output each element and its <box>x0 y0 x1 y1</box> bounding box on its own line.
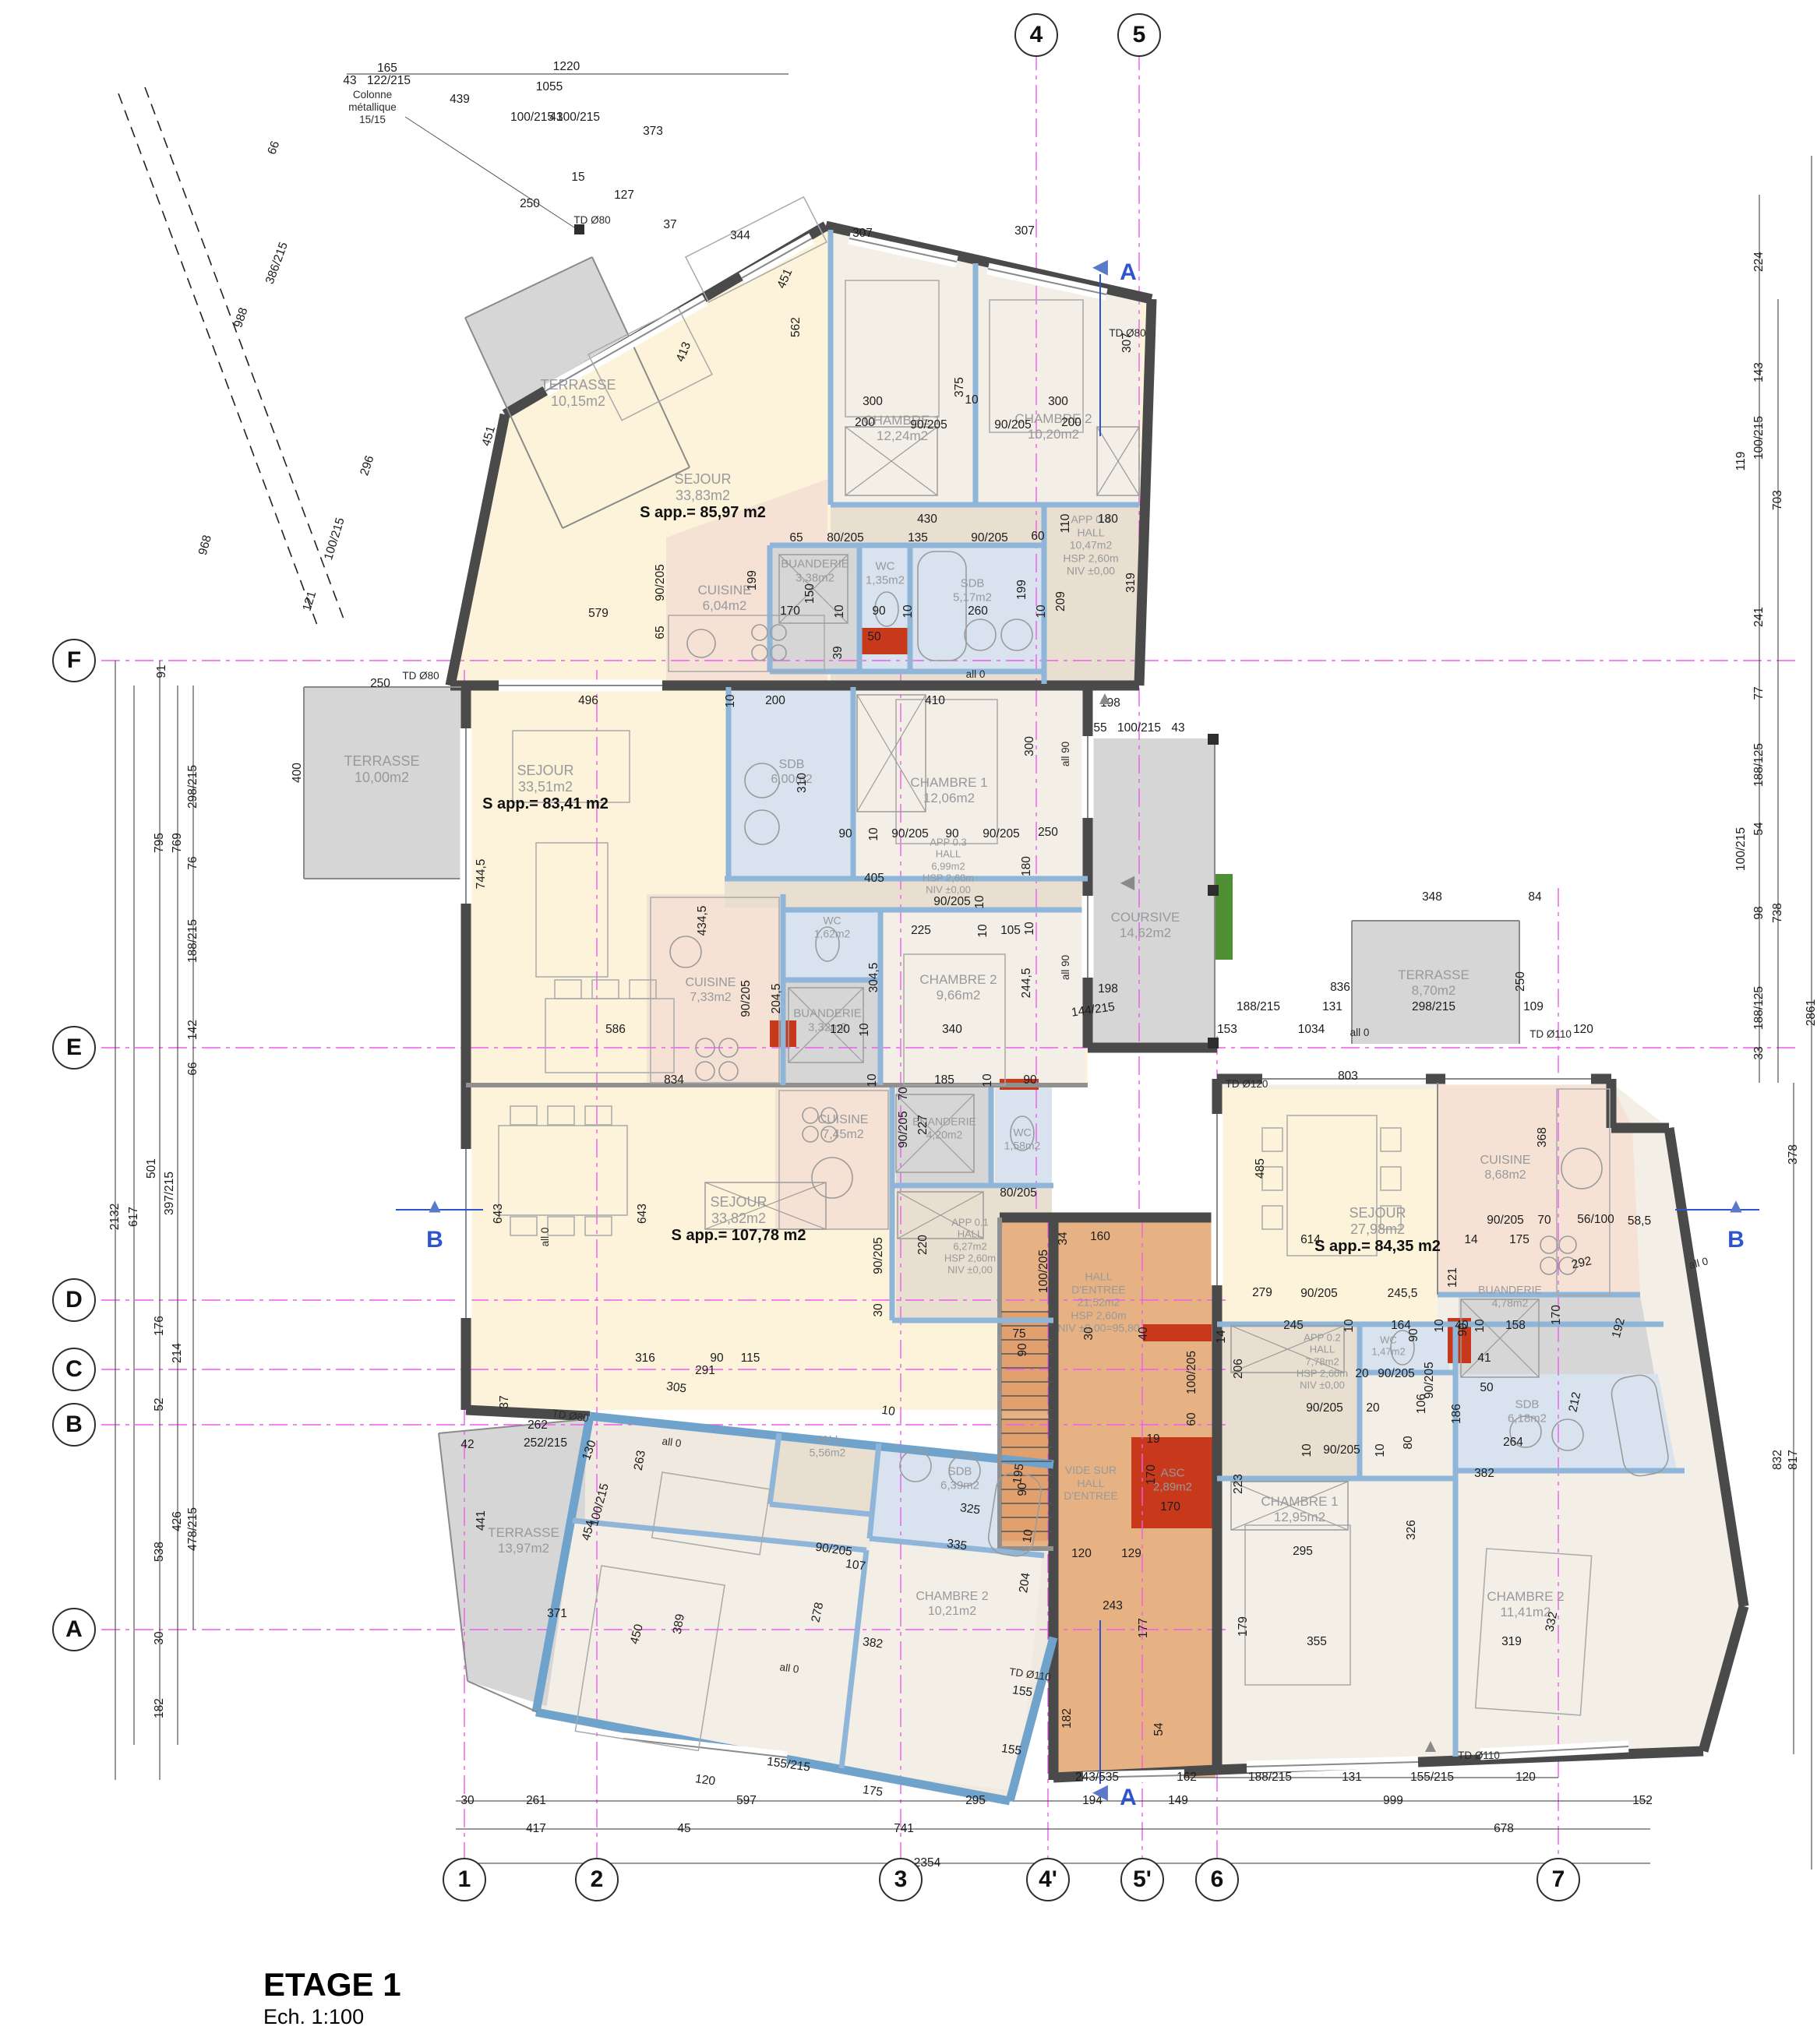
dimension-label: 149 <box>1168 1794 1188 1808</box>
dimension-label: 155/215 <box>1410 1771 1454 1785</box>
dimension-label: 155 <box>1000 1742 1022 1759</box>
dimension-label: 175 <box>862 1783 884 1800</box>
dimension-label: 54 <box>1752 822 1766 835</box>
dimension-label: 10 <box>724 694 738 707</box>
dimension-label: 305 <box>665 1380 687 1397</box>
dimension-label: 243 <box>1103 1599 1123 1613</box>
room-label-cuisine-app03: CUISINE7,33m2 <box>686 976 736 1006</box>
room-label-sdb-wing: SDB6,39m2 <box>940 1464 979 1492</box>
dimension-label: 441 <box>475 1510 489 1531</box>
room-label-chambre1-app03: CHAMBRE 112,06m2 <box>910 775 987 806</box>
dimension-label: 260 <box>968 604 988 618</box>
dimension-label: 307 <box>852 227 873 241</box>
dimension-label: 90/205 <box>654 564 668 601</box>
dimension-label: 142 <box>186 1020 200 1040</box>
dimension-label: 430 <box>917 513 937 527</box>
dimension-label: 115 <box>741 1352 760 1366</box>
dimension-label: 10 <box>1023 922 1037 935</box>
dimension-label: 10 <box>1374 1443 1388 1457</box>
dimension-label: 143 <box>1752 362 1766 382</box>
dimension-label: 496 <box>578 694 598 708</box>
dimension-label: 60 <box>1185 1412 1199 1426</box>
dimension-label: 319 <box>1501 1635 1522 1649</box>
annotation-label: TD Ø80 <box>1109 327 1145 340</box>
room-label-cuisine-app02: CUISINE8,68m2 <box>1480 1154 1531 1183</box>
dimension-label: 252/215 <box>524 1436 567 1450</box>
title-block: ETAGE 1 Ech. 1:100 <box>263 1966 401 2029</box>
dimension-label: 100/215 <box>1752 416 1766 460</box>
room-label-vide-hall: VIDE SURHALLD'ENTREE <box>1064 1464 1118 1503</box>
room-label-sdb-app02: SDB6,18m2 <box>1508 1397 1547 1425</box>
room-label-terrasse-app01: TERRASSE13,97m2 <box>488 1525 559 1556</box>
annotation-label: TD Ø110 <box>1458 1750 1500 1762</box>
dimension-label: 100/215 <box>510 111 554 125</box>
annotation-label: TD Ø120 <box>1226 1078 1268 1091</box>
annotation-label: all 0 <box>662 1435 683 1450</box>
dimension-label: 245 <box>1283 1319 1304 1333</box>
dimension-label: 10 <box>866 1073 880 1087</box>
dimension-label: 382 <box>862 1635 884 1652</box>
annotation-label: all 90 <box>1060 742 1072 766</box>
dimension-label: 84 <box>1528 890 1541 904</box>
dimension-label: 155 <box>1011 1683 1033 1700</box>
dimension-label: 70 <box>1537 1214 1551 1228</box>
dimension-label: 417 <box>526 1822 546 1836</box>
dimension-label: 295 <box>965 1794 986 1808</box>
dimension-label: 209 <box>1054 591 1068 611</box>
dimension-label: 100/215 <box>1734 827 1748 871</box>
dimension-label: 60 <box>1031 530 1044 544</box>
dimension-label: 54 <box>1152 1722 1166 1736</box>
dimension-label: 340 <box>942 1023 962 1037</box>
room-label-hall-app02: APP 0.2HALL7,78m2HSP 2,60mNIV ±0,00 <box>1297 1332 1348 1392</box>
dimension-label: 90/205 <box>1378 1367 1414 1381</box>
dimension-label: 185 <box>934 1073 954 1087</box>
dimension-label: 90 <box>1023 1073 1036 1087</box>
room-label-buanderie-app02: BUANDERIE4,78m2 <box>1478 1283 1542 1309</box>
grid-bubble-D: D <box>52 1278 96 1322</box>
dimension-label: 2132 <box>108 1203 122 1230</box>
room-label-hall-entree: HALLD'ENTREE21,52m2HSP 2,60mNIV ±0,00=95… <box>1057 1270 1139 1335</box>
dimension-label: 10 <box>1342 1319 1357 1332</box>
dimension-label: 250 <box>1038 826 1058 840</box>
room-label-cuisine-app01: CUISINE7,45m2 <box>818 1113 869 1143</box>
dimension-label: 90/205 <box>897 1111 911 1147</box>
dimension-label: 90/205 <box>872 1237 886 1274</box>
dimension-label: 179 <box>1237 1616 1251 1637</box>
dimension-label: 120 <box>1515 1771 1536 1785</box>
dimension-label: 100/205 <box>1185 1351 1199 1394</box>
dimension-label: 119 <box>1734 452 1748 471</box>
dimension-label: 224 <box>1752 252 1766 272</box>
dimension-label: 204,5 <box>770 984 784 1014</box>
dimension-label: 188/215 <box>1248 1771 1292 1785</box>
dimension-label: 80/205 <box>1000 1186 1036 1200</box>
dimension-label: 90 <box>1016 1482 1030 1496</box>
dimension-label: 158 <box>1505 1319 1526 1333</box>
dimension-label: 382 <box>1474 1467 1494 1481</box>
dimension-label: 70 <box>897 1087 911 1100</box>
dimension-label: 738 <box>1771 903 1785 923</box>
dimension-label: 325 <box>959 1501 981 1518</box>
dimension-label: 105 <box>1000 924 1021 938</box>
dimension-label: 834 <box>664 1073 684 1087</box>
dimension-label: 195 <box>1011 1463 1028 1485</box>
grid-bubble-B: B <box>52 1403 96 1447</box>
dimension-label: 180 <box>1098 513 1118 527</box>
room-label-buanderie-app04: BUANDERIE3,38m2 <box>781 557 849 584</box>
dimension-label: 170 <box>780 604 800 618</box>
dimension-label: 90/205 <box>994 418 1031 432</box>
dimension-label: 200 <box>765 694 785 708</box>
dimension-label: 129 <box>1121 1547 1141 1561</box>
room-fill <box>1143 1324 1212 1341</box>
direction-marker: ◀ <box>1120 872 1134 893</box>
dimension-label: 400 <box>291 763 305 783</box>
room-fill <box>859 628 908 654</box>
room-label-sejour-app04: SEJOUR33,83m2S app.= 85,97 m2 <box>640 471 766 523</box>
dimension-label: 319 <box>1124 573 1138 593</box>
dimension-label: 37 <box>663 218 676 232</box>
dimension-label: 90/205 <box>971 531 1007 545</box>
room-fill <box>545 1522 866 1767</box>
dimension-label: 703 <box>1771 490 1785 510</box>
room-label-wc-app04: WC1,35m2 <box>866 559 905 587</box>
drawing-scale: Ech. 1:100 <box>263 2005 401 2029</box>
dimension-label: 478/215 <box>186 1507 200 1551</box>
dimension-label: 373 <box>643 125 663 139</box>
dimension-label: 170 <box>1160 1500 1180 1514</box>
dimension-label: 122/215 <box>367 74 411 88</box>
dimension-label: 355 <box>1307 1635 1327 1649</box>
room-label-wc-app03: WC1,62m2 <box>814 914 851 939</box>
dimension-label: 10 <box>981 1073 995 1087</box>
dimension-label: 803 <box>1338 1070 1358 1084</box>
dimension-label: 90 <box>838 827 852 841</box>
dimension-label: 37 <box>498 1395 512 1408</box>
dimension-label: 14 <box>1215 1330 1229 1343</box>
dimension-label: 795 <box>153 833 167 853</box>
dimension-label: 227 <box>916 1115 930 1135</box>
dimension-label: 307 <box>1014 224 1035 238</box>
dimension-label: 162 <box>1177 1771 1197 1785</box>
dimension-label: 378 <box>1787 1144 1801 1165</box>
dimension-label: 300 <box>863 395 883 409</box>
dimension-label: 250 <box>1514 971 1528 992</box>
page-title: ETAGE 1 <box>263 1966 401 2003</box>
dimension-label: 200 <box>855 416 875 430</box>
dimension-label: 180 <box>1020 856 1034 876</box>
direction-marker: ▲ <box>1095 688 1114 710</box>
grid-bubble-4': 4' <box>1026 1858 1070 1901</box>
dimension-label: 80 <box>1402 1436 1416 1449</box>
dimension-label: 100/205 <box>1037 1249 1051 1293</box>
floor-plan: TERRASSE10,15m2SEJOUR33,83m2S app.= 85,9… <box>0 0 1817 2044</box>
dimension-label: 10 <box>976 924 990 937</box>
room-label-asc: ASC2,89m2 <box>1153 1466 1192 1493</box>
dimension-label: 245,5 <box>1388 1287 1418 1301</box>
section-label-A: A <box>1120 259 1137 286</box>
dimension-label: 90/205 <box>1423 1362 1437 1398</box>
dimension-label: 562 <box>789 317 803 337</box>
dimension-label: 90/205 <box>1487 1214 1523 1228</box>
dimension-label: 75 <box>1012 1327 1025 1341</box>
dimension-label: 15 <box>571 171 584 185</box>
room-fill <box>1001 1312 1052 1411</box>
room-fill <box>831 230 974 502</box>
dimension-label: 182 <box>153 1698 167 1718</box>
dimension-label: 225 <box>911 924 931 938</box>
dimension-label: 90 <box>945 827 958 841</box>
room-label-sejour-app03: SEJOUR33,51m2S app.= 83,41 m2 <box>482 763 609 814</box>
dimension-label: 10 <box>833 604 847 618</box>
grid-bubble-5: 5 <box>1117 13 1161 57</box>
dimension-label: 90/205 <box>891 827 928 841</box>
room-fill <box>1001 1419 1052 1541</box>
dimension-label: 1034 <box>1298 1023 1325 1037</box>
dimension-label: 40 <box>1137 1327 1151 1340</box>
dimension-label: 279 <box>1252 1286 1272 1300</box>
grid-bubble-5': 5' <box>1120 1858 1164 1901</box>
room-label-chambre2-app03: CHAMBRE 29,66m2 <box>919 972 997 1003</box>
dimension-label: 43 <box>1171 721 1184 735</box>
dimension-label: 170 <box>1145 1464 1159 1485</box>
dimension-label: 152 <box>1632 1794 1653 1808</box>
dimension-label: 744,5 <box>475 859 489 890</box>
dimension-label: 120 <box>1071 1547 1092 1561</box>
dimension-label: 170 <box>1550 1305 1564 1325</box>
dimension-label: 120 <box>830 1023 850 1037</box>
annotation-label: all 0 <box>966 668 986 681</box>
dimension-label: 66 <box>186 1062 200 1075</box>
dimension-label: 214 <box>171 1343 185 1363</box>
dimension-label: 100/215 <box>1117 721 1161 735</box>
dimension-label: 135 <box>908 531 928 545</box>
room-label-cuisine-app04: CUISINE6,04m2 <box>698 583 752 614</box>
dimension-label: 80/205 <box>827 531 863 545</box>
dimension-label: 90/205 <box>1306 1401 1342 1415</box>
dimension-label: 90/205 <box>933 895 970 909</box>
annotation-label: TD Ø110 <box>1529 1028 1572 1041</box>
dimension-label: 300 <box>1048 395 1068 409</box>
dimension-label: 90/205 <box>1300 1287 1337 1301</box>
annotation-label: all 0 <box>539 1228 552 1247</box>
grid-bubble-4: 4 <box>1014 13 1058 57</box>
dimension-label: 310 <box>796 773 810 793</box>
dimension-label: 250 <box>520 197 540 211</box>
dimension-label: 90/205 <box>983 827 1019 841</box>
dimension-label: 50 <box>1480 1381 1493 1395</box>
dimension-label: 405 <box>864 872 884 886</box>
room-label-hall-app01: APP 0.1HALL6,27m2HSP 2,60mNIV ±0,00 <box>944 1217 996 1277</box>
grid-bubble-1: 1 <box>443 1858 486 1901</box>
dimension-label: 10 <box>1035 604 1049 618</box>
dimension-label: 678 <box>1494 1822 1514 1836</box>
direction-marker: ▲ <box>1421 1736 1440 1757</box>
dimension-label: 264 <box>1503 1436 1523 1450</box>
dimension-label: 579 <box>588 607 609 621</box>
dimension-label: 182 <box>1060 1708 1074 1729</box>
dimension-label: 33 <box>1752 1046 1766 1059</box>
dimension-label: 10 <box>867 827 881 841</box>
room-label-terrasse-app04: TERRASSE10,15m2 <box>540 377 616 410</box>
dimension-label: 19 <box>1146 1433 1159 1447</box>
dimension-label: 348 <box>1422 890 1442 904</box>
dimension-label: 291 <box>695 1364 715 1378</box>
dimension-label: 300 <box>1023 736 1037 756</box>
dimension-label: 90 <box>1456 1323 1470 1336</box>
dimension-label: 295 <box>1293 1545 1313 1559</box>
dimension-label: 999 <box>1383 1794 1403 1808</box>
section-triangle-A: ◀ <box>1092 1780 1108 1804</box>
room-label-sejour-app02: SEJOUR27,98m2S app.= 84,35 m2 <box>1314 1205 1441 1256</box>
section-label-A: A <box>1120 1785 1137 1811</box>
dimension-label: 186 <box>1450 1404 1464 1424</box>
dimension-label: 344 <box>730 229 750 243</box>
dimension-label: 30 <box>1082 1327 1096 1340</box>
room-label-hall-app03: APP 0.3HALL6,99m2HSP 2,60mNIV ±0,00 <box>923 837 974 897</box>
dimension-label: 150 <box>803 583 817 604</box>
dimension-label: 98 <box>1752 906 1766 919</box>
dimension-label: 34 <box>1057 1232 1071 1245</box>
dimension-label: 10 <box>1473 1319 1487 1332</box>
dimension-label: 10 <box>880 1404 896 1420</box>
dimension-label: 77 <box>1752 686 1766 700</box>
dimension-label: 10 <box>965 393 978 407</box>
dimension-label: 304,5 <box>867 963 881 993</box>
dimension-label: 316 <box>635 1352 655 1366</box>
dimension-label: 120 <box>694 1772 716 1789</box>
dimension-label: 42 <box>460 1438 474 1452</box>
dimension-label: 90/205 <box>1323 1443 1360 1457</box>
dimension-label: 131 <box>1342 1771 1362 1785</box>
dimension-label: 30 <box>872 1303 886 1316</box>
annotation-label: TD Ø80 <box>402 670 439 682</box>
dimension-label: 91 <box>155 664 169 678</box>
dimension-label: 43 <box>343 74 356 88</box>
dimension-label: 426 <box>171 1511 185 1531</box>
annotation-label: Colonne métallique 15/15 <box>348 89 397 126</box>
dimension-label: 65 <box>654 626 668 639</box>
dimension-label: 597 <box>736 1794 757 1808</box>
grid-bubble-3: 3 <box>879 1858 923 1901</box>
dimension-label: 617 <box>127 1207 141 1227</box>
dimension-label: 200 <box>1061 416 1081 430</box>
dimension-label: 643 <box>636 1203 650 1224</box>
dimension-label: 58,5 <box>1628 1214 1651 1228</box>
room-label-wc-app02: WC1,47m2 <box>1371 1334 1405 1359</box>
grid-bubble-7: 7 <box>1537 1858 1580 1901</box>
section-triangle-B: ▲ <box>1726 1194 1746 1218</box>
dimension-label: 90 <box>1016 1343 1030 1356</box>
dimension-label: 1055 <box>536 80 563 94</box>
section-label-B: B <box>426 1227 443 1253</box>
grid-bubble-E: E <box>52 1026 96 1070</box>
dimension-label: 262 <box>527 1418 548 1433</box>
annotation-label: all 0 <box>1350 1027 1370 1039</box>
dimension-label: 176 <box>153 1316 167 1336</box>
room-label-sejour-app01: SEJOUR33,82m2S app.= 107,78 m2 <box>672 1194 806 1246</box>
grid-bubble-A: A <box>52 1608 96 1651</box>
dimension-label: 2861 <box>1805 999 1817 1026</box>
dimension-label: 206 <box>1232 1359 1246 1379</box>
room-label-terrasse-app03: TERRASSE10,00m2 <box>344 753 419 786</box>
dimension-label: 10 <box>1300 1443 1314 1457</box>
dimension-label: 439 <box>450 93 470 107</box>
dimension-label: 410 <box>925 694 945 708</box>
dimension-label: 220 <box>916 1235 930 1255</box>
property-line <box>145 87 344 621</box>
dimension-label: 250 <box>370 677 390 691</box>
dimension-label: 204 <box>1017 1572 1034 1594</box>
dimension-label: 769 <box>171 833 185 853</box>
room-label-sdb-app04: SDB5,17m2 <box>953 576 992 604</box>
dimension-label: 20 <box>1366 1401 1379 1415</box>
dimension-label: 326 <box>1405 1520 1419 1540</box>
dimension-label: 298/215 <box>186 765 200 809</box>
dimension-label: 10 <box>1433 1319 1447 1332</box>
dimension-label: 121 <box>1446 1267 1460 1288</box>
dimension-label: 177 <box>1137 1618 1151 1638</box>
dimension-label: 538 <box>153 1542 167 1562</box>
dimension-label: 836 <box>1330 981 1350 995</box>
grid-bubble-2: 2 <box>575 1858 619 1901</box>
dimension-label: 175 <box>1509 1233 1529 1247</box>
dimension-label: 76 <box>186 856 200 869</box>
dimension-label: 52 <box>153 1397 167 1411</box>
dimension-label: 41 <box>1477 1352 1491 1366</box>
dimension-label: 501 <box>145 1158 159 1179</box>
dimension-label: 241 <box>1752 607 1766 627</box>
section-label-B: B <box>1727 1227 1745 1253</box>
dimension-label: 55 <box>1093 721 1106 735</box>
dimension-label: 1220 <box>553 60 580 74</box>
dimension-label: 643 <box>492 1203 506 1224</box>
column-post <box>1208 1038 1219 1048</box>
dimension-label: 90/205 <box>910 418 947 432</box>
dimension-label: 10 <box>1021 1528 1037 1544</box>
dimension-label: 45 <box>677 1822 690 1836</box>
dimension-label: 188/125 <box>1752 743 1766 787</box>
column-post <box>1208 885 1219 896</box>
dimension-label: 65 <box>789 531 803 545</box>
dimension-label: 741 <box>894 1822 914 1836</box>
dimension-label: 50 <box>867 630 880 644</box>
dimension-label: 56/100 <box>1577 1213 1614 1227</box>
dimension-label: 223 <box>1232 1474 1246 1494</box>
dimension-label: 199 <box>746 570 760 590</box>
dimension-label: 188/215 <box>1237 1000 1280 1014</box>
annotation-label: all 90 <box>1060 955 1072 980</box>
dimension-label: 110 <box>1059 514 1073 534</box>
room-label-hall-wing: HALL5,56m2 <box>810 1433 846 1458</box>
dimension-label: 586 <box>605 1023 626 1037</box>
dimension-label: 10 <box>973 895 987 908</box>
dimension-label: 39 <box>831 646 845 659</box>
dimension-label: 188/125 <box>1752 986 1766 1030</box>
dimension-label: 368 <box>1536 1127 1550 1147</box>
dimension-label: 30 <box>153 1631 167 1644</box>
dimension-label: 107 <box>845 1557 866 1574</box>
floor-plan-canvas <box>0 0 1817 2044</box>
dimension-label: 10 <box>858 1023 872 1036</box>
section-triangle-B: ▲ <box>425 1194 445 1218</box>
dimension-label: 100/215 <box>556 111 600 125</box>
property-line <box>118 93 318 627</box>
dimension-label: 188/215 <box>186 919 200 963</box>
dimension-label: 127 <box>614 189 634 203</box>
dimension-label: 397/215 <box>163 1172 177 1215</box>
